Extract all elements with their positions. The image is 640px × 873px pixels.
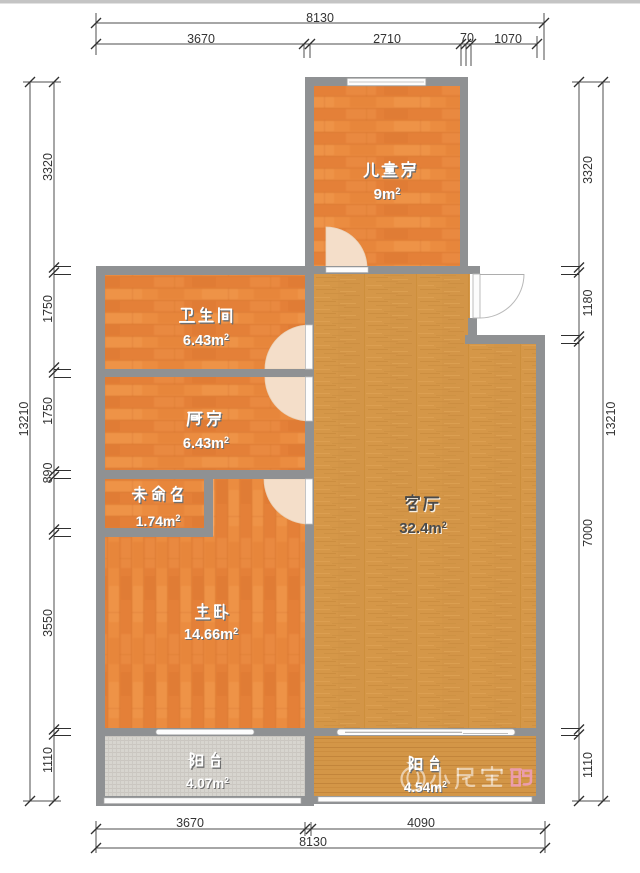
svg-text:13210: 13210 [17,402,31,437]
svg-text:4090: 4090 [407,816,435,830]
svg-text:70: 70 [460,31,474,45]
svg-text:8130: 8130 [306,11,334,25]
svg-text:890: 890 [41,463,55,484]
svg-text:1.74m2: 1.74m2 [136,513,181,529]
svg-text:13210: 13210 [604,402,618,437]
svg-text:1110: 1110 [41,747,55,773]
svg-text:4.07m2: 4.07m2 [186,775,229,791]
svg-text:7000: 7000 [581,519,595,547]
svg-text:3670: 3670 [187,32,215,46]
svg-text:3320: 3320 [41,153,55,181]
svg-text:3670: 3670 [176,816,204,830]
svg-text:1070: 1070 [494,32,522,46]
svg-text:1110: 1110 [581,752,595,778]
svg-text:8130: 8130 [299,835,327,849]
svg-text:1750: 1750 [41,397,55,425]
svg-text:14.66m2: 14.66m2 [184,626,238,643]
svg-text:32.4m2: 32.4m2 [399,520,447,537]
svg-text:3550: 3550 [41,609,55,637]
svg-text:6.43m2: 6.43m2 [183,435,229,452]
svg-text:6.43m2: 6.43m2 [183,332,229,349]
svg-text:2710: 2710 [373,32,401,46]
svg-text:3320: 3320 [581,156,595,184]
svg-text:1750: 1750 [41,295,55,323]
svg-text:1180: 1180 [581,290,595,317]
